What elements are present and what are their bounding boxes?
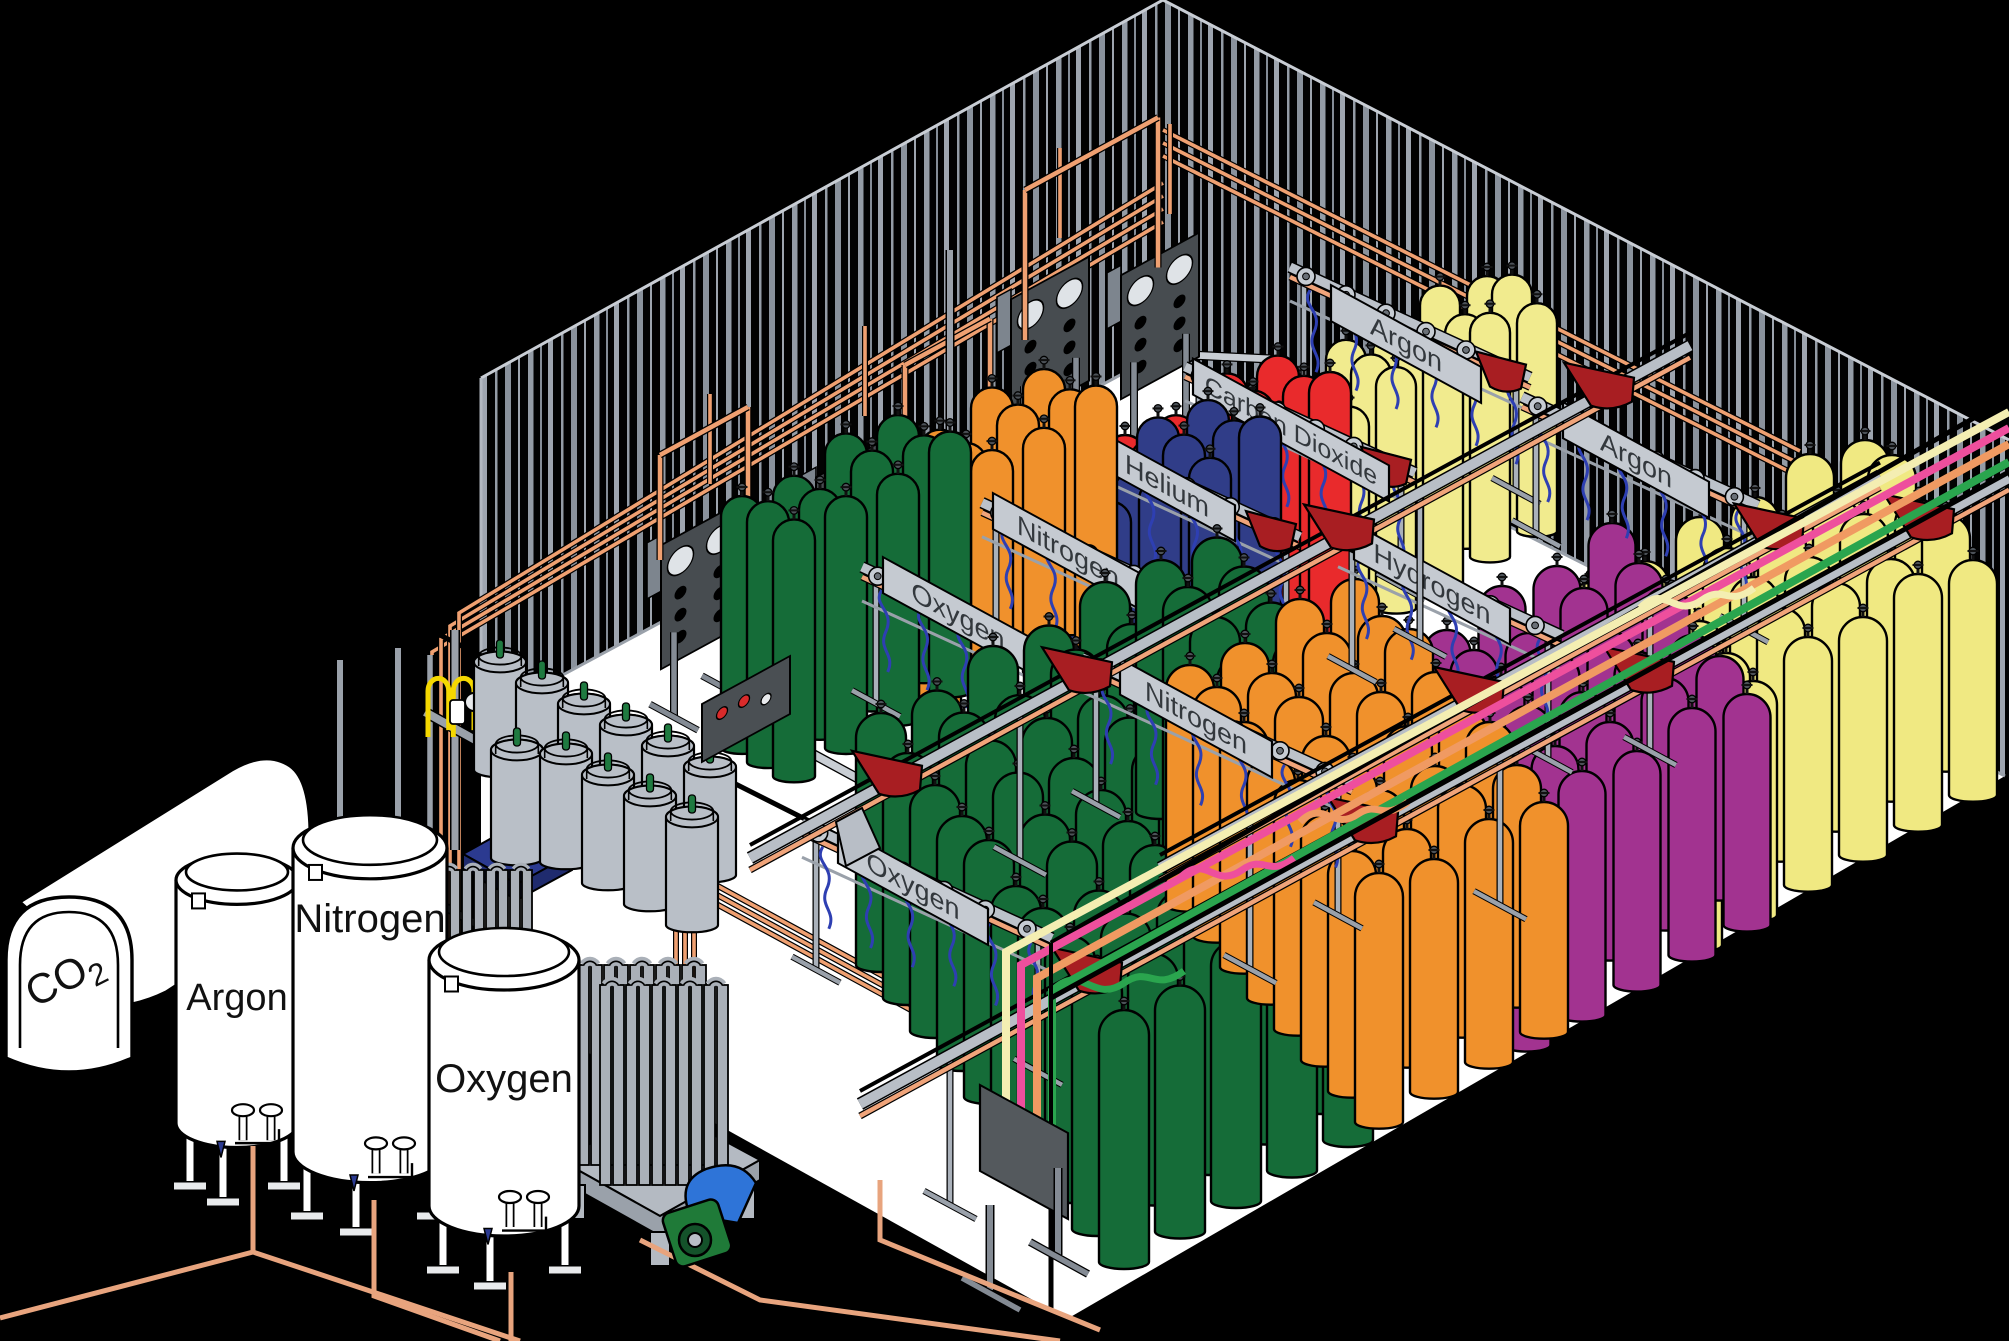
svg-text:Argon: Argon bbox=[186, 977, 287, 1019]
svg-text:Nitrogen: Nitrogen bbox=[294, 897, 445, 941]
svg-text:Oxygen: Oxygen bbox=[435, 1057, 573, 1101]
